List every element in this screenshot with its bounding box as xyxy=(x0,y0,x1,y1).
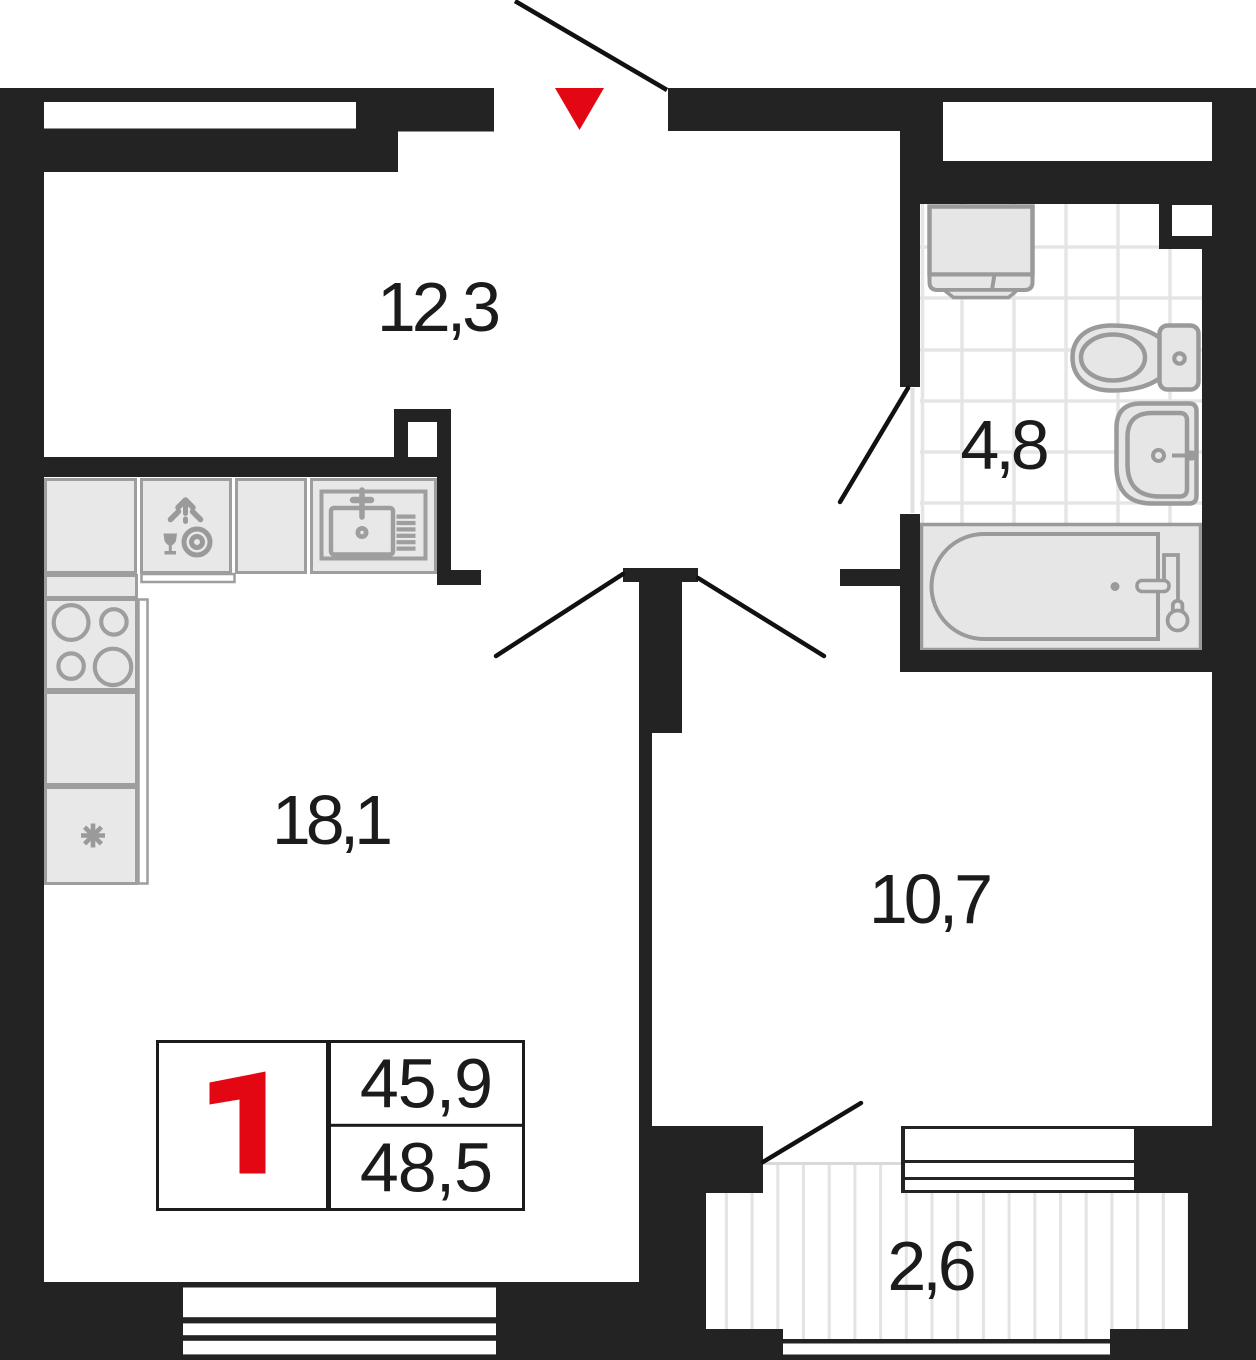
svg-text:4,8: 4,8 xyxy=(960,406,1046,484)
svg-text:12,3: 12,3 xyxy=(377,268,498,346)
svg-text:48,5: 48,5 xyxy=(360,1129,492,1207)
svg-text:10,7: 10,7 xyxy=(869,860,990,938)
svg-text:18,1: 18,1 xyxy=(272,781,390,859)
svg-text:2,6: 2,6 xyxy=(887,1227,973,1305)
svg-text:45,9: 45,9 xyxy=(360,1045,492,1123)
